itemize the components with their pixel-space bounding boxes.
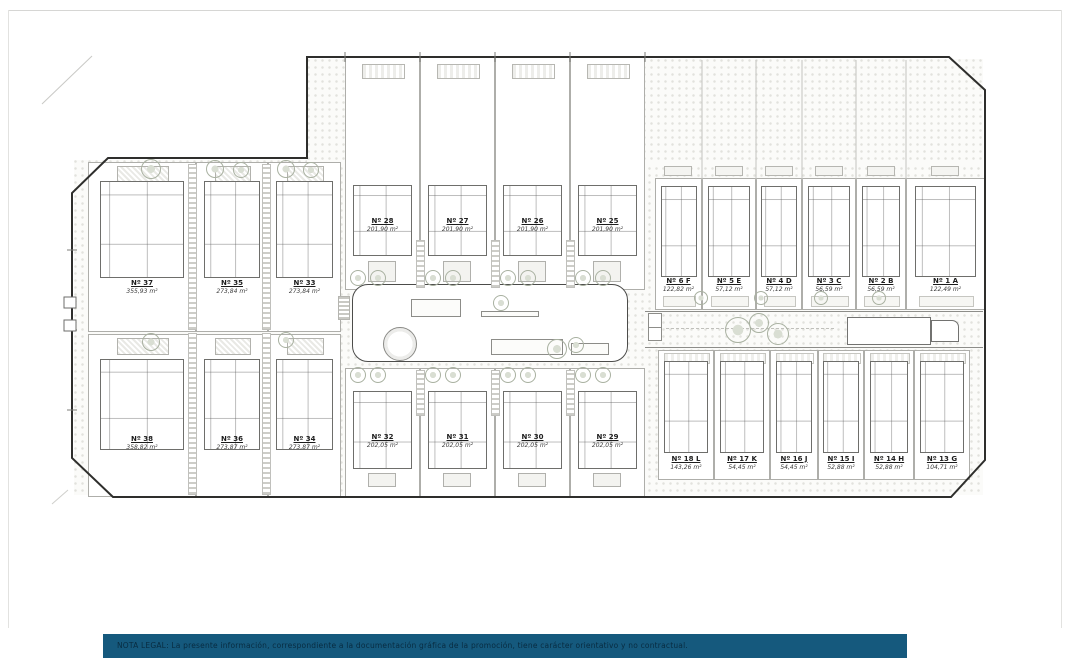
stair-strip	[262, 164, 271, 330]
unit-label: Nº 17 K 54,45 m²	[715, 455, 769, 472]
stair-strip	[188, 333, 197, 495]
unit-number: Nº 31	[421, 433, 494, 442]
tree-icon	[277, 160, 295, 178]
unit-area: 273,84 m²	[269, 288, 340, 296]
garden-steps	[338, 296, 350, 320]
unit-area: 201,90 m²	[421, 226, 494, 234]
unit-number: Nº 16 J	[771, 455, 817, 464]
spa-circle-icon	[383, 327, 417, 361]
tree-icon	[595, 367, 611, 383]
legal-text: NOTA LEGAL: La presente información, cor…	[117, 641, 907, 650]
tree-icon	[141, 159, 161, 179]
unit-area: 202,05 m²	[571, 442, 644, 450]
unit-label: Nº 13 G 104,71 m²	[915, 455, 969, 472]
unit-label: Nº 3 C 56,59 m²	[803, 277, 855, 294]
unit-n-38: Nº 38 358,82 m²	[88, 334, 196, 497]
unit-label: Nº 29 202,05 m²	[571, 433, 644, 450]
unit-number: Nº 33	[269, 279, 340, 288]
unit-number: Nº 32	[346, 433, 419, 442]
unit-label: Nº 33 273,84 m²	[269, 279, 340, 296]
roof-deck	[815, 166, 843, 176]
unit-area: 202,05 m²	[421, 442, 494, 450]
tree-icon	[500, 270, 516, 286]
truck-cab	[931, 320, 959, 342]
tree-icon	[595, 270, 611, 286]
unit-number: Nº 28	[346, 217, 419, 226]
unit-house-outline	[915, 186, 977, 278]
site-plan: Nº 37 355,93 m² Nº 35 273,84 m² Nº 33 27…	[0, 0, 1070, 650]
tree-icon	[725, 317, 751, 343]
tree-icon	[370, 367, 386, 383]
unit-n-35: Nº 35 273,84 m²	[196, 162, 268, 332]
roof-deck	[867, 166, 895, 176]
unit-area: 358,82 m²	[89, 444, 195, 452]
unit-label: Nº 26 201,90 m²	[496, 217, 569, 234]
roof-deck	[715, 166, 743, 176]
unit-house-outline	[428, 391, 486, 469]
unit-house-outline	[100, 181, 185, 277]
unit-number: Nº 4 D	[757, 277, 801, 286]
tree-icon	[278, 332, 294, 348]
unit-area: 273,87 m²	[197, 444, 267, 452]
stair-strip	[188, 164, 197, 330]
unit-n-32: Nº 32 202,05 m²	[345, 368, 420, 497]
unit-house-outline	[661, 186, 697, 278]
unit-number: Nº 17 K	[715, 455, 769, 464]
unit-area: 355,93 m²	[89, 288, 195, 296]
unit-area: 202,05 m²	[496, 442, 569, 450]
stair-strip	[491, 240, 500, 288]
unit-label: Nº 27 201,90 m²	[421, 217, 494, 234]
tree-icon	[575, 367, 591, 383]
unit-n-17-k: Nº 17 K 54,45 m²	[714, 350, 770, 480]
unit-house-outline	[776, 361, 813, 453]
tree-icon	[749, 313, 769, 333]
unit-label: Nº 15 I 52,88 m²	[819, 455, 863, 472]
unit-area: 54,45 m²	[771, 464, 817, 472]
unit-label: Nº 6 F 122,82 m²	[656, 277, 701, 294]
unit-house-outline	[761, 186, 796, 278]
unit-label: Nº 34 273,87 m²	[269, 435, 340, 452]
unit-number: Nº 2 B	[857, 277, 905, 286]
unit-number: Nº 18 L	[659, 455, 713, 464]
tree-icon	[694, 291, 708, 305]
unit-area: 52,88 m²	[865, 464, 913, 472]
unit-number: Nº 26	[496, 217, 569, 226]
unit-number: Nº 15 I	[819, 455, 863, 464]
tree-icon	[575, 270, 591, 286]
survey-mark-bottomleft	[52, 490, 68, 504]
unit-n-4-d: Nº 4 D 57,12 m²	[756, 178, 802, 310]
unit-house-outline	[720, 361, 763, 453]
tree-icon	[425, 367, 441, 383]
unit-area: 201,90 m²	[571, 226, 644, 234]
unit-n-36: Nº 36 273,87 m²	[196, 334, 268, 497]
unit-n-28: Nº 28 201,90 m²	[345, 57, 420, 290]
road-edge-top	[645, 311, 983, 312]
unit-label: Nº 32 202,05 m²	[346, 433, 419, 450]
unit-number: Nº 1 A	[907, 277, 984, 286]
utility-box	[648, 313, 662, 341]
tree-icon	[520, 367, 536, 383]
unit-label: Nº 5 E 57,12 m²	[703, 277, 755, 294]
unit-n-5-e: Nº 5 E 57,12 m²	[702, 178, 756, 310]
unit-label: Nº 18 L 143,26 m²	[659, 455, 713, 472]
tree-icon	[767, 323, 789, 345]
unit-area: 52,88 m²	[819, 464, 863, 472]
page: { "footer": { "bar_color": "#15597d", "l…	[0, 0, 1070, 650]
tree-icon	[350, 367, 366, 383]
unit-label: Nº 38 358,82 m²	[89, 435, 195, 452]
unit-n-25: Nº 25 201,90 m²	[570, 57, 645, 290]
truck-trailer	[847, 317, 931, 345]
unit-n-33: Nº 33 273,84 m²	[268, 162, 341, 332]
tree-icon	[547, 339, 567, 359]
unit-n-3-c: Nº 3 C 56,59 m²	[802, 178, 856, 310]
unit-number: Nº 36	[197, 435, 267, 444]
unit-number: Nº 37	[89, 279, 195, 288]
unit-number: Nº 6 F	[656, 277, 701, 286]
unit-label: Nº 35 273,84 m²	[197, 279, 267, 296]
tree-icon	[568, 337, 584, 353]
legal-bar: NOTA LEGAL: La presente información, cor…	[103, 634, 907, 658]
unit-house-outline	[870, 361, 908, 453]
tree-icon	[142, 333, 160, 351]
tree-icon	[370, 270, 386, 286]
unit-house-outline	[578, 391, 636, 469]
unit-n-34: Nº 34 273,87 m²	[268, 334, 341, 497]
unit-area: 122,82 m²	[656, 286, 701, 294]
unit-label: Nº 31 202,05 m²	[421, 433, 494, 450]
unit-n-1-a: Nº 1 A 122,49 m²	[906, 178, 985, 310]
unit-area: 201,90 m²	[496, 226, 569, 234]
unit-n-31: Nº 31 202,05 m²	[420, 368, 495, 497]
tree-icon	[872, 291, 886, 305]
unit-area: 122,49 m²	[907, 286, 984, 294]
unit-n-6-f: Nº 6 F 122,82 m²	[655, 178, 702, 310]
unit-n-37: Nº 37 355,93 m²	[88, 162, 196, 332]
unit-n-29: Nº 29 202,05 m²	[570, 368, 645, 497]
unit-area: 104,71 m²	[915, 464, 969, 472]
pergola	[411, 299, 461, 317]
survey-mark-topleft	[42, 56, 92, 104]
unit-n-14-h: Nº 14 H 52,88 m²	[864, 350, 914, 480]
unit-label: Nº 36 273,87 m²	[197, 435, 267, 452]
tree-icon	[303, 162, 319, 178]
unit-house-outline	[664, 361, 707, 453]
unit-n-16-j: Nº 16 J 54,45 m²	[770, 350, 818, 480]
stair-strip	[416, 370, 425, 416]
tree-icon	[445, 367, 461, 383]
unit-number: Nº 25	[571, 217, 644, 226]
unit-area: 57,12 m²	[703, 286, 755, 294]
unit-n-18-l: Nº 18 L 143,26 m²	[658, 350, 714, 480]
roof-deck	[931, 166, 959, 176]
unit-n-15-i: Nº 15 I 52,88 m²	[818, 350, 864, 480]
tree-icon	[233, 162, 249, 178]
truck-icon	[846, 314, 960, 344]
tree-icon	[814, 291, 828, 305]
unit-house-outline	[503, 391, 561, 469]
unit-label: Nº 25 201,90 m²	[571, 217, 644, 234]
unit-area: 273,84 m²	[197, 288, 267, 296]
unit-n-26: Nº 26 201,90 m²	[495, 57, 570, 290]
unit-area: 201,90 m²	[346, 226, 419, 234]
unit-house-outline	[808, 186, 850, 278]
planter-1	[481, 311, 539, 317]
unit-n-30: Nº 30 202,05 m²	[495, 368, 570, 497]
tree-icon	[350, 270, 366, 286]
unit-number: Nº 29	[571, 433, 644, 442]
unit-number: Nº 13 G	[915, 455, 969, 464]
unit-label: Nº 1 A 122,49 m²	[907, 277, 984, 294]
unit-number: Nº 35	[197, 279, 267, 288]
unit-number: Nº 14 H	[865, 455, 913, 464]
unit-label: Nº 14 H 52,88 m²	[865, 455, 913, 472]
tree-icon	[520, 270, 536, 286]
tree-icon	[754, 291, 768, 305]
unit-area: 273,87 m²	[269, 444, 340, 452]
tree-icon	[445, 270, 461, 286]
unit-area: 54,45 m²	[715, 464, 769, 472]
unit-house-outline	[823, 361, 858, 453]
stair-strip	[566, 370, 575, 416]
roof-deck	[765, 166, 793, 176]
unit-n-13-g: Nº 13 G 104,71 m²	[914, 350, 970, 480]
unit-number: Nº 5 E	[703, 277, 755, 286]
unit-label: Nº 30 202,05 m²	[496, 433, 569, 450]
unit-house-outline	[204, 181, 260, 277]
unit-label: Nº 16 J 54,45 m²	[771, 455, 817, 472]
unit-house-outline	[920, 361, 963, 453]
unit-label: Nº 28 201,90 m²	[346, 217, 419, 234]
stair-strip	[491, 370, 500, 416]
communal-garden	[352, 284, 628, 362]
unit-n-2-b: Nº 2 B 56,59 m²	[856, 178, 906, 310]
unit-house-outline	[276, 181, 333, 277]
unit-area: 202,05 m²	[346, 442, 419, 450]
unit-n-27: Nº 27 201,90 m²	[420, 57, 495, 290]
unit-number: Nº 34	[269, 435, 340, 444]
unit-number: Nº 30	[496, 433, 569, 442]
stair-strip	[566, 240, 575, 288]
unit-house-outline	[353, 391, 411, 469]
roof-deck	[664, 166, 692, 176]
unit-house-outline	[862, 186, 900, 278]
unit-number: Nº 3 C	[803, 277, 855, 286]
unit-number: Nº 38	[89, 435, 195, 444]
tree-icon	[206, 160, 224, 178]
unit-label: Nº 37 355,93 m²	[89, 279, 195, 296]
unit-house-outline	[708, 186, 750, 278]
stair-strip	[262, 333, 271, 495]
stair-strip	[416, 240, 425, 288]
unit-number: Nº 27	[421, 217, 494, 226]
tree-icon	[425, 270, 441, 286]
unit-area: 56,59 m²	[803, 286, 855, 294]
road-edge-bottom	[645, 347, 983, 348]
tree-icon	[500, 367, 516, 383]
tree-icon	[493, 295, 509, 311]
unit-area: 143,26 m²	[659, 464, 713, 472]
